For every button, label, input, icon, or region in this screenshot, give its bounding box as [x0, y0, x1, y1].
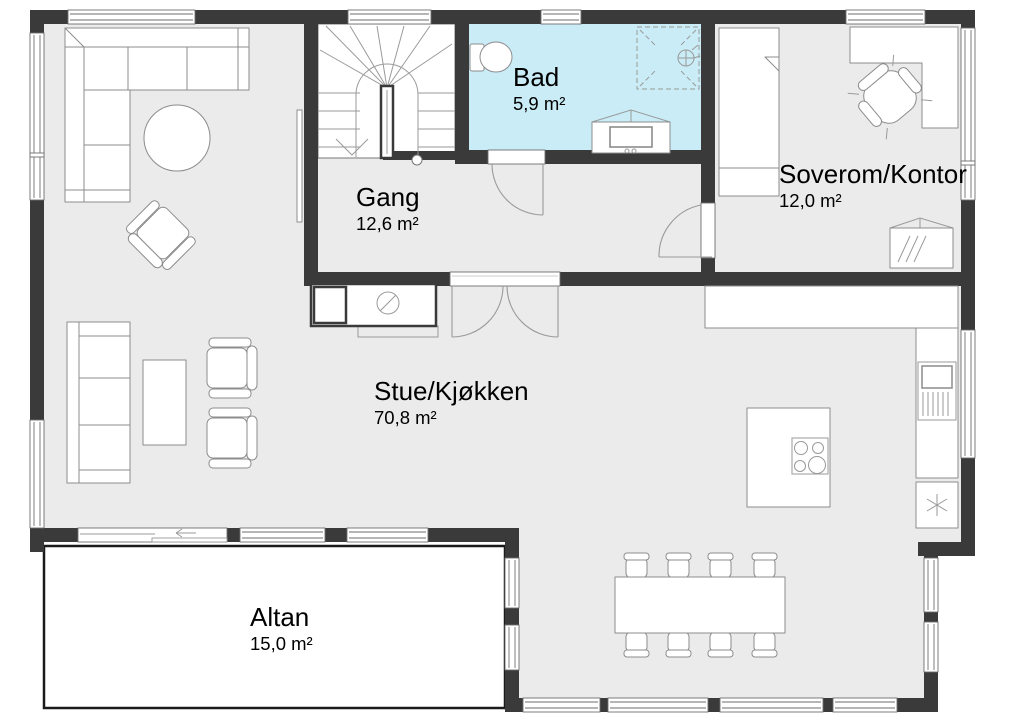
armchair [207, 338, 257, 398]
dining-chair [752, 632, 777, 657]
room-name: Altan [250, 604, 313, 632]
room-area: 70,8 m² [374, 408, 529, 428]
dining-chair [624, 553, 649, 578]
dining-chair [666, 553, 691, 578]
room-name: Bad [513, 64, 565, 92]
dining-chair [708, 632, 733, 657]
dining-chair [624, 632, 649, 657]
bed [719, 28, 779, 196]
window [924, 558, 938, 612]
floor-plan-drawing [0, 0, 1018, 720]
window [608, 698, 708, 712]
window [523, 698, 600, 712]
window [30, 420, 44, 528]
room-label-stue: Stue/Kjøkken 70,8 m² [374, 378, 529, 427]
room-label-altan: Altan 15,0 m² [250, 604, 313, 653]
window [240, 528, 325, 542]
sliding-door [78, 528, 227, 542]
floor-plan: Bad 5,9 m² Gang 12,6 m² Soverom/Kontor 1… [0, 0, 1018, 720]
room-area: 15,0 m² [250, 634, 313, 654]
wall-tv [297, 110, 302, 222]
window [348, 10, 431, 24]
kitchen-counter-top [705, 286, 958, 328]
window [68, 10, 195, 24]
wall-livingroom-stair [304, 24, 318, 272]
wall-hall-bedroom-b [701, 258, 715, 274]
wall-hall-bedroom-a [701, 150, 715, 203]
freezer [916, 482, 958, 528]
kitchen-counter-right [916, 328, 958, 478]
room-label-gang: Gang 12,6 m² [356, 184, 420, 233]
window [30, 33, 44, 200]
wall-bath-south-a [455, 150, 488, 164]
room-label-bad: Bad 5,9 m² [513, 64, 565, 113]
window [347, 528, 428, 542]
window [961, 330, 975, 458]
window [846, 10, 925, 24]
room-area: 5,9 m² [513, 94, 565, 114]
wall-dining-left [505, 528, 519, 712]
window [505, 558, 519, 608]
window [924, 622, 938, 672]
round-coffee-table [144, 105, 210, 171]
wall-hall-south-right [560, 272, 961, 286]
dining-table [615, 577, 785, 633]
wall-bath-bedroom [701, 24, 715, 152]
room-area: 12,0 m² [779, 191, 967, 211]
room-name: Soverom/Kontor [779, 161, 967, 189]
room-label-soverom: Soverom/Kontor 12,0 m² [779, 161, 967, 210]
toilet [470, 42, 512, 72]
dining-chair [752, 553, 777, 578]
coffee-table [143, 360, 186, 445]
dining-chair [666, 632, 691, 657]
window [720, 698, 823, 712]
dining-chair [708, 553, 733, 578]
window [541, 10, 581, 24]
door-stop [412, 155, 422, 165]
window [505, 625, 519, 670]
wall-step [918, 542, 975, 556]
room-name: Stue/Kjøkken [374, 378, 529, 406]
kitchen-island [747, 408, 830, 507]
room-name: Gang [356, 184, 420, 212]
armchair [207, 408, 257, 468]
room-area: 12,6 m² [356, 214, 420, 234]
wall-stair-bath [455, 24, 469, 158]
window [833, 698, 897, 712]
sofa [67, 322, 130, 483]
